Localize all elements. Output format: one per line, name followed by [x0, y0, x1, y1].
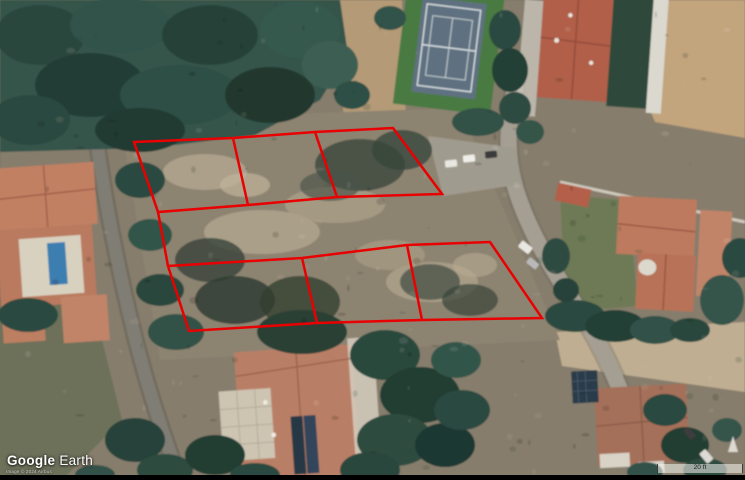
satellite-photo: [0, 0, 745, 480]
texture-speckle: [686, 393, 693, 399]
texture-speckle: [172, 380, 174, 385]
texture-speckle: [314, 400, 319, 406]
texture-speckle: [431, 376, 439, 379]
ellipse-photo-shape: [452, 108, 504, 136]
ellipse-photo-shape: [175, 238, 245, 282]
texture-speckle: [603, 406, 610, 411]
ellipse-photo-shape: [499, 92, 531, 124]
texture-speckle: [316, 334, 320, 340]
texture-speckle: [510, 446, 517, 451]
texture-speckle: [314, 219, 323, 225]
texture-speckle: [25, 351, 31, 357]
scale-bar: 20 ft: [657, 464, 743, 473]
texture-speckle: [659, 386, 663, 391]
texture-speckle: [357, 272, 364, 275]
rect-photo-shape: [485, 150, 498, 158]
ellipse-photo-shape: [453, 253, 497, 277]
texture-speckle: [188, 72, 195, 77]
ellipse-photo-shape: [492, 48, 528, 92]
texture-speckle: [416, 52, 419, 54]
logo-google: Google: [7, 453, 55, 468]
house-top-right: [536, 0, 669, 114]
rect-photo-shape: [463, 154, 476, 162]
texture-speckle: [580, 391, 589, 394]
texture-speckle: [235, 120, 237, 126]
texture-speckle: [450, 347, 459, 351]
ellipse-photo-shape: [553, 278, 579, 302]
texture-speckle: [73, 134, 79, 138]
texture-speckle: [347, 285, 350, 292]
google-earth-logo: GoogleEarth: [7, 453, 93, 468]
texture-speckle: [534, 413, 542, 418]
texture-speckle: [261, 39, 265, 44]
texture-speckle: [52, 279, 59, 285]
texture-speckle: [570, 220, 577, 226]
texture-speckle: [528, 440, 531, 446]
ellipse-photo-shape: [0, 298, 58, 332]
texture-speckle: [376, 267, 379, 271]
texture-speckle: [376, 198, 385, 205]
texture-speckle: [493, 145, 499, 152]
texture-speckle: [63, 390, 66, 393]
texture-speckle: [642, 364, 649, 370]
texture-speckle: [141, 343, 143, 350]
texture-speckle: [104, 262, 112, 266]
texture-speckle: [188, 345, 190, 351]
texture-speckle: [210, 419, 217, 421]
texture-speckle: [409, 291, 416, 298]
texture-speckle: [427, 227, 429, 229]
imagery-attribution: Image © 2024 Airbus: [6, 469, 52, 474]
texture-speckle: [591, 296, 596, 298]
texture-speckle: [300, 219, 304, 224]
texture-speckle: [159, 201, 163, 208]
texture-speckle: [119, 350, 122, 353]
texture-speckle: [143, 405, 146, 411]
texture-speckle: [298, 235, 305, 239]
texture-speckle: [222, 18, 227, 24]
texture-speckle: [316, 168, 324, 171]
texture-speckle: [86, 257, 91, 262]
texture-speckle: [262, 464, 266, 467]
texture-speckle: [179, 382, 182, 386]
texture-speckle: [189, 297, 198, 304]
texture-speckle: [685, 391, 687, 394]
ellipse-photo-shape: [434, 390, 490, 430]
texture-speckle: [316, 7, 319, 13]
texture-speckle: [192, 375, 199, 377]
green-roof-building: [606, 0, 654, 109]
texture-speckle: [76, 146, 85, 148]
ellipse-photo-shape: [700, 275, 744, 325]
texture-speckle: [367, 187, 371, 191]
texture-speckle: [514, 393, 516, 396]
texture-speckle: [635, 250, 643, 253]
texture-speckle: [661, 131, 669, 136]
texture-speckle: [107, 119, 116, 122]
logo-earth: Earth: [59, 453, 93, 468]
bottom-letterbox-bar: [0, 475, 745, 480]
texture-speckle: [454, 289, 460, 294]
texture-speckle: [370, 451, 378, 453]
texture-speckle: [549, 270, 556, 275]
texture-speckle: [399, 311, 405, 313]
texture-speckle: [331, 416, 339, 420]
texture-speckle: [302, 25, 304, 31]
rect-photo-shape: [599, 453, 630, 469]
texture-speckle: [355, 80, 357, 83]
texture-speckle: [586, 214, 590, 218]
texture-speckle: [130, 320, 134, 325]
texture-speckle: [487, 109, 493, 113]
texture-speckle: [274, 2, 276, 7]
texture-speckle: [103, 231, 109, 233]
texture-speckle: [521, 324, 525, 328]
ellipse-photo-shape: [643, 394, 687, 426]
texture-speckle: [533, 293, 541, 295]
texture-speckle: [413, 258, 421, 265]
texture-speckle: [407, 352, 412, 357]
rect-photo-shape: [0, 162, 98, 231]
texture-speckle: [213, 259, 220, 261]
texture-speckle: [347, 182, 350, 189]
texture-speckle: [618, 226, 621, 232]
texture-speckle: [565, 27, 571, 32]
texture-speckle: [513, 182, 519, 188]
ellipse-photo-shape: [442, 284, 498, 316]
texture-speckle: [686, 319, 694, 323]
ellipse-photo-shape: [516, 120, 544, 144]
texture-speckle: [237, 88, 243, 92]
texture-speckle: [363, 103, 371, 110]
texture-speckle: [521, 360, 525, 362]
texture-speckle: [723, 28, 730, 32]
texture-speckle: [708, 408, 713, 413]
texture-speckle: [422, 465, 430, 469]
texture-speckle: [665, 34, 669, 36]
texture-speckle: [499, 13, 502, 18]
texture-speckle: [682, 53, 688, 58]
texture-speckle: [353, 390, 358, 397]
texture-speckle: [462, 341, 468, 346]
texture-speckle: [702, 435, 706, 442]
ellipse-photo-shape: [489, 10, 521, 50]
texture-speckle: [512, 128, 517, 131]
texture-speckle: [144, 279, 151, 283]
texture-speckle: [241, 112, 246, 117]
ellipse-photo-shape: [372, 130, 432, 170]
texture-speckle: [46, 186, 50, 192]
texture-speckle: [383, 31, 389, 35]
ellipse-photo-shape: [95, 108, 185, 152]
ellipse-photo-shape: [542, 238, 570, 274]
texture-speckle: [183, 415, 186, 418]
texture-speckle: [271, 137, 277, 140]
texture-speckle: [217, 40, 224, 46]
texture-speckle: [305, 264, 309, 269]
texture-speckle: [133, 318, 140, 324]
texture-speckle: [74, 37, 82, 40]
texture-speckle: [324, 184, 332, 187]
texture-speckle: [578, 235, 587, 242]
texture-speckle: [641, 384, 649, 391]
texture-speckle: [713, 394, 719, 401]
texture-speckle: [570, 186, 573, 191]
texture-speckle: [208, 252, 213, 258]
texture-speckle: [37, 121, 45, 127]
rect-photo-shape: [616, 196, 697, 258]
texture-speckle: [352, 90, 355, 94]
texture-speckle: [272, 232, 278, 238]
texture-speckle: [4, 27, 13, 32]
texture-speckle: [408, 386, 410, 391]
texture-speckle: [346, 276, 350, 280]
texture-speckle: [735, 357, 742, 363]
texture-speckle: [700, 288, 709, 290]
texture-speckle: [586, 335, 594, 340]
ellipse-photo-shape: [712, 418, 742, 442]
texture-speckle: [596, 295, 604, 298]
texture-speckle: [232, 111, 234, 113]
texture-speckle: [338, 313, 346, 316]
texture-speckle: [701, 335, 707, 340]
texture-speckle: [524, 149, 528, 155]
ellipse-photo-shape: [257, 310, 347, 354]
rect-photo-shape: [445, 159, 458, 167]
texture-speckle: [239, 43, 243, 50]
texture-speckle: [709, 376, 711, 380]
texture-speckle: [409, 328, 413, 331]
rect-photo-shape: [61, 294, 110, 343]
ellipse-photo-shape: [225, 67, 315, 123]
texture-speckle: [543, 161, 550, 167]
texture-speckle: [56, 116, 64, 122]
texture-speckle: [723, 238, 732, 243]
texture-speckle: [572, 128, 577, 133]
texture-speckle: [732, 270, 739, 276]
texture-speckle: [689, 163, 691, 165]
texture-speckle: [474, 162, 482, 165]
texture-speckle: [573, 444, 576, 449]
texture-speckle: [333, 92, 337, 96]
texture-speckle: [191, 166, 196, 173]
texture-speckle: [113, 131, 117, 137]
texture-speckle: [196, 128, 203, 133]
texture-speckle: [507, 434, 513, 440]
google-earth-viewport[interactable]: GoogleEarth Image © 2024 Airbus 20 ft: [0, 0, 745, 480]
texture-speckle: [536, 257, 543, 264]
texture-speckle: [555, 78, 563, 82]
texture-speckle: [728, 37, 731, 41]
texture-speckle: [399, 337, 408, 344]
texture-speckle: [76, 414, 85, 416]
texture-speckle: [682, 82, 687, 88]
texture-speckle: [701, 78, 706, 81]
scale-bar-label: 20 ft: [694, 465, 707, 472]
swimming-pool: [47, 242, 68, 285]
texture-speckle: [431, 345, 439, 347]
texture-speckle: [277, 275, 284, 279]
texture-speckle: [502, 192, 508, 198]
texture-speckle: [408, 419, 411, 422]
texture-speckle: [232, 357, 238, 362]
texture-speckle: [610, 201, 616, 207]
tennis-court: [393, 0, 505, 115]
texture-speckle: [493, 133, 496, 140]
texture-speckle: [66, 48, 75, 53]
ellipse-photo-shape: [115, 162, 165, 198]
texture-speckle: [655, 11, 657, 18]
texture-speckle: [400, 348, 405, 353]
texture-speckle: [582, 433, 590, 437]
texture-speckle: [517, 439, 523, 444]
texture-speckle: [379, 24, 382, 30]
texture-speckle: [620, 296, 622, 301]
texture-speckle: [721, 398, 723, 401]
ellipse-photo-shape: [148, 314, 204, 350]
texture-speckle: [93, 34, 98, 36]
ellipse-photo-shape: [162, 5, 258, 65]
texture-speckle: [245, 168, 248, 171]
